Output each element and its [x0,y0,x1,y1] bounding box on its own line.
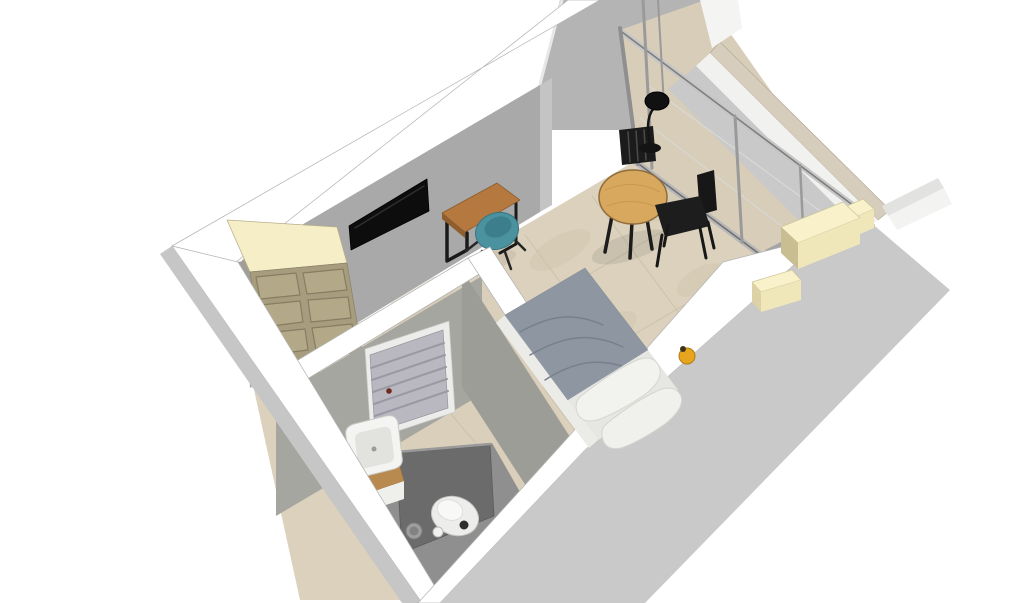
dresser-drawer[interactable] [256,273,300,299]
decor-ball-stem [680,346,686,352]
bathroom-bin-inner [410,527,419,536]
toilet-flush-knob[interactable] [460,521,469,530]
sink-drain [372,447,377,452]
dresser-drawer[interactable] [303,269,347,294]
3d-viewport[interactable] [0,0,1024,603]
floor-lamp-head[interactable] [645,92,669,110]
toilet-paper-roll [433,527,443,537]
bathroom-door-handle[interactable] [386,388,392,394]
room-planner-canvas[interactable] [0,0,1024,603]
table-leg[interactable] [630,222,632,258]
dresser-drawer[interactable] [308,297,351,322]
table-top[interactable] [599,170,667,224]
nw-wall-end-face [540,78,552,212]
